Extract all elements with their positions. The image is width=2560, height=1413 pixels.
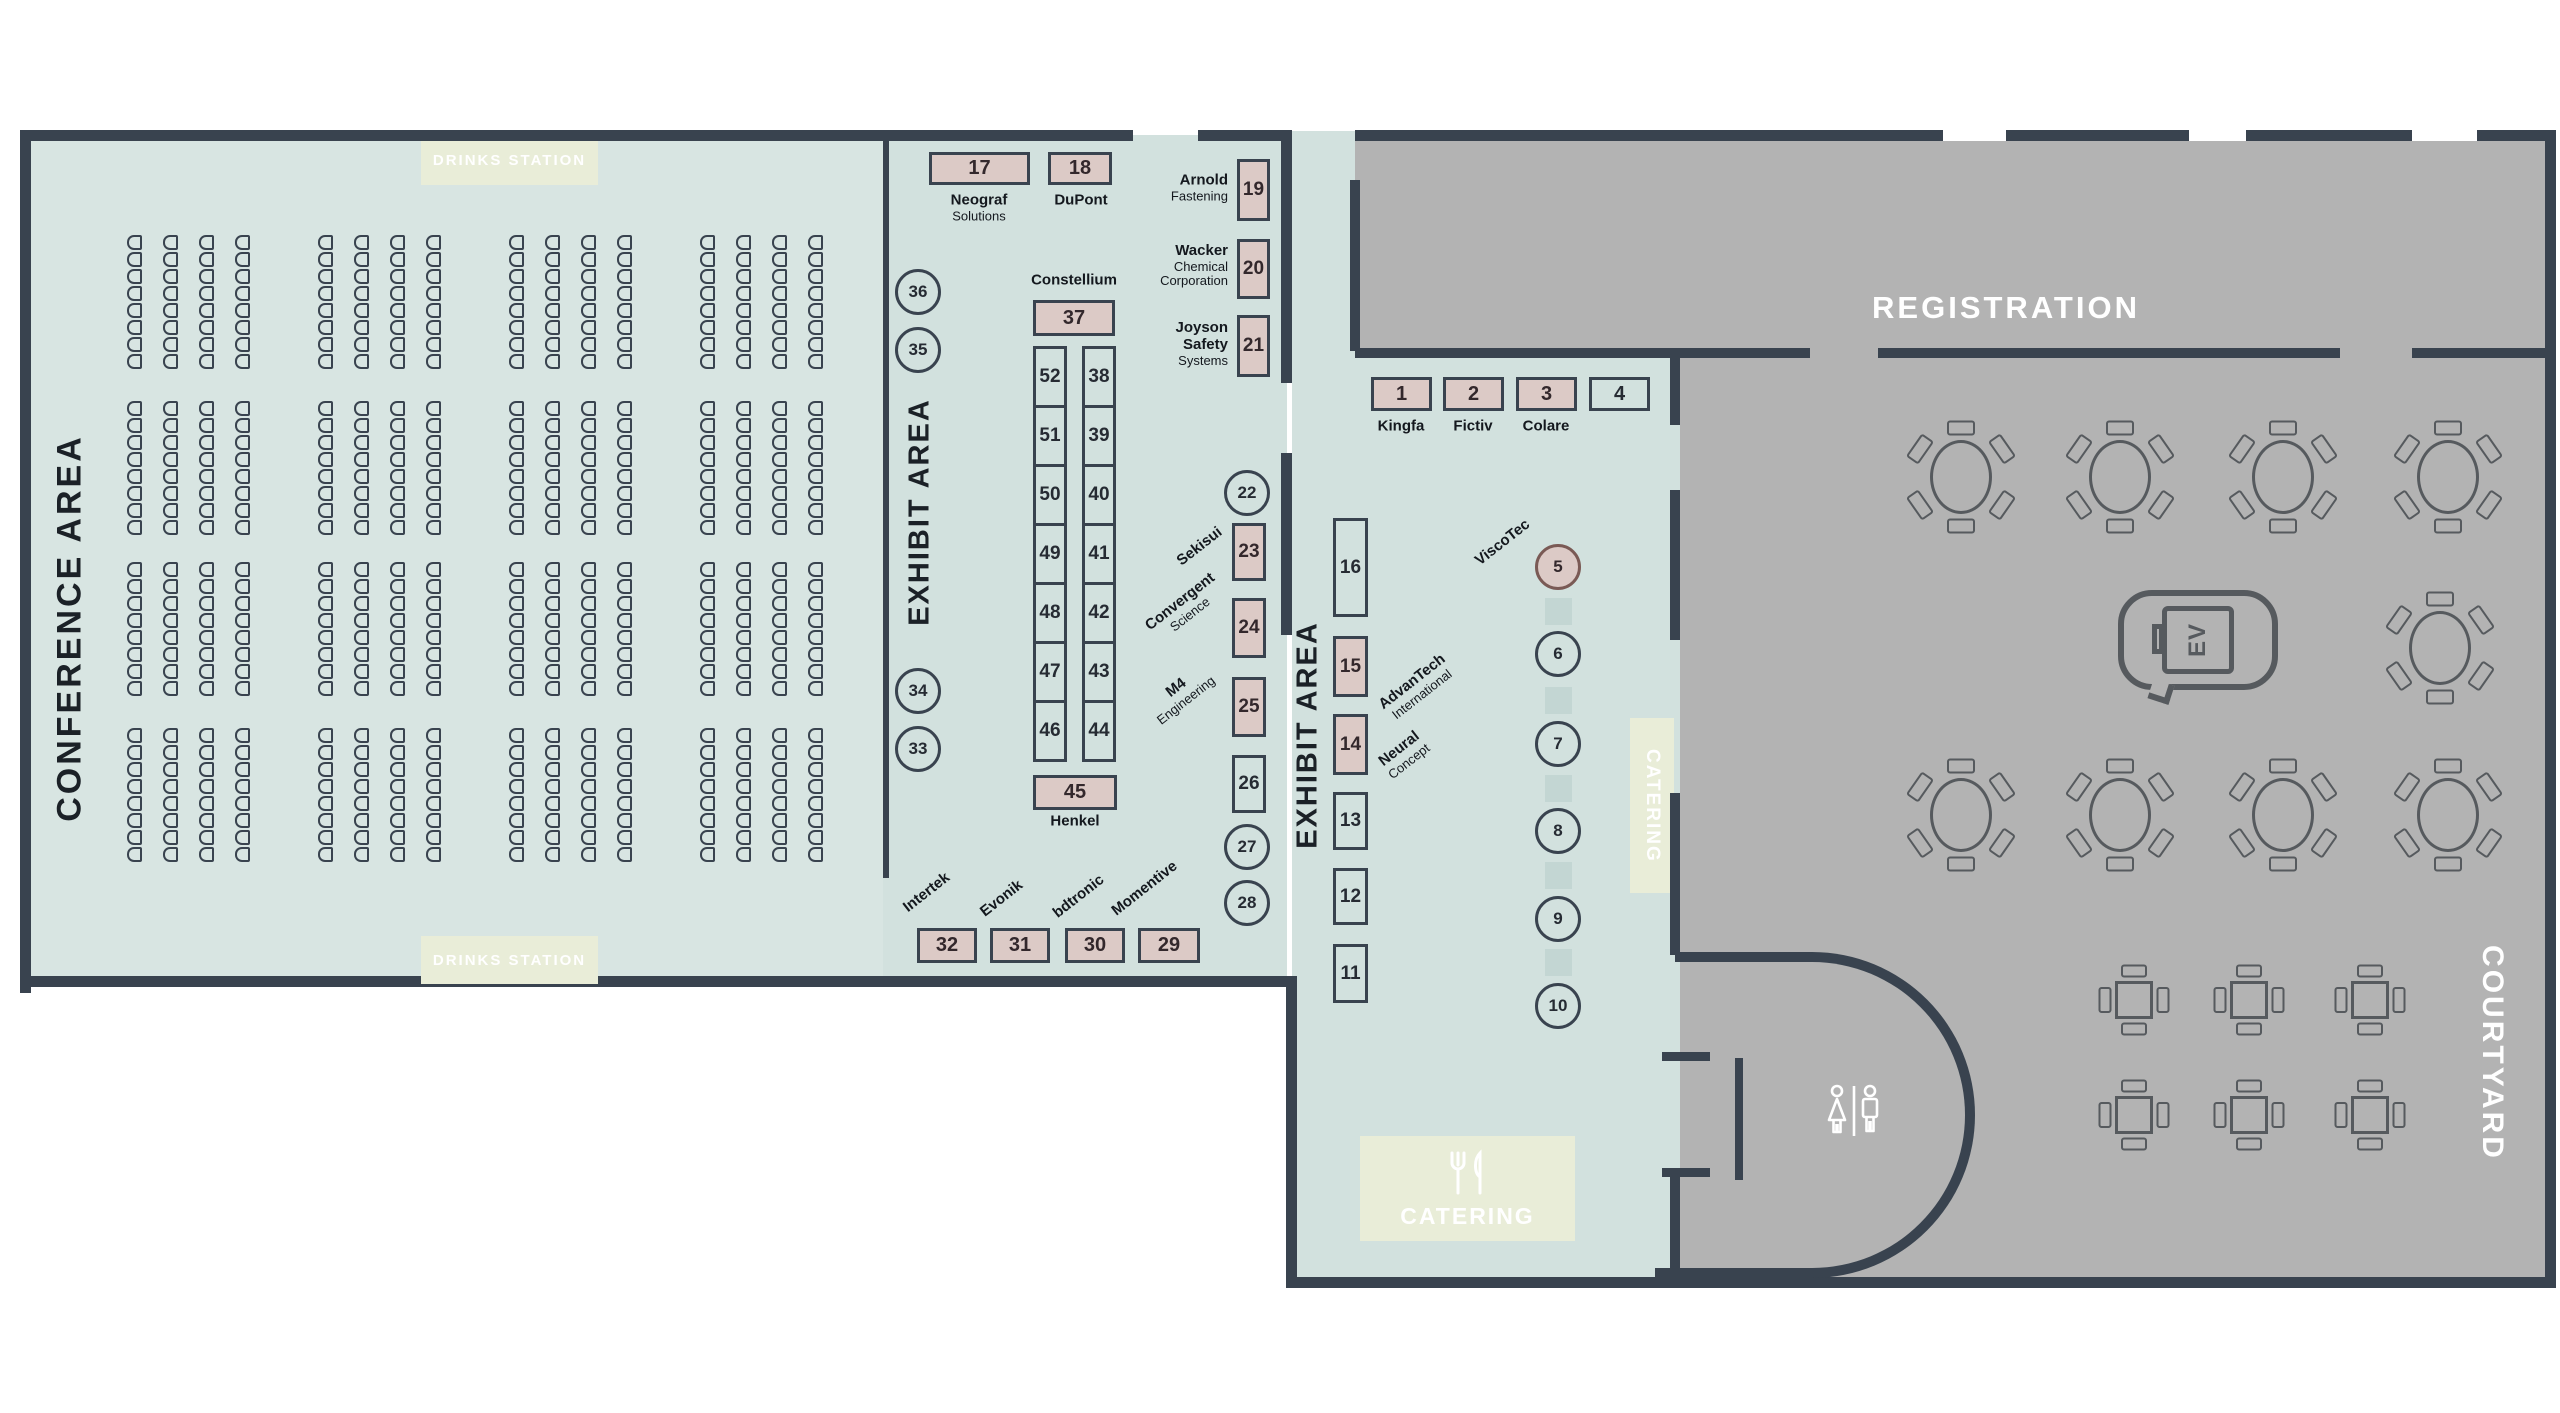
conference-chair: [581, 503, 596, 518]
booth-44[interactable]: 44: [1082, 700, 1116, 762]
wall: [1655, 1268, 1690, 1278]
conference-chair: [163, 613, 178, 628]
conference-chair: [700, 779, 715, 794]
conference-chair: [736, 613, 751, 628]
conference-chair: [235, 664, 250, 679]
conference-chair: [235, 813, 250, 828]
conference-chair: [199, 681, 214, 696]
conference-chair: [354, 728, 369, 743]
conference-chair: [235, 562, 250, 577]
conference-chair: [426, 847, 441, 862]
conference-chair: [545, 847, 560, 862]
conference-chair: [700, 664, 715, 679]
conference-chair: [426, 813, 441, 828]
conference-chair: [235, 435, 250, 450]
wall: [1670, 793, 1680, 955]
conference-chair: [199, 813, 214, 828]
conference-chair: [617, 418, 632, 433]
conference-chair: [545, 647, 560, 662]
conference-chair: [163, 269, 178, 284]
wall: [1878, 348, 2340, 358]
conference-chair: [509, 303, 524, 318]
wall: [1281, 453, 1292, 635]
conference-chair: [617, 320, 632, 335]
booth-23[interactable]: 23: [1232, 523, 1266, 581]
booth-4[interactable]: 4: [1589, 377, 1650, 411]
booth-34[interactable]: 34: [895, 668, 941, 714]
floor-conference-zone: [31, 141, 883, 982]
conference-chair: [736, 813, 751, 828]
conference-chair: [509, 647, 524, 662]
conference-chair: [736, 520, 751, 535]
conference-chair: [736, 401, 751, 416]
table-chair: [2121, 1080, 2147, 1093]
conference-chair: [736, 579, 751, 594]
conference-chair: [318, 435, 333, 450]
conference-chair: [581, 847, 596, 862]
booth-13[interactable]: 13: [1333, 792, 1368, 850]
conference-chair: [318, 252, 333, 267]
conference-chair: [163, 354, 178, 369]
conference-chair: [127, 354, 142, 369]
booth-48[interactable]: 48: [1033, 582, 1067, 644]
booth-24[interactable]: 24: [1232, 598, 1266, 658]
booth-14[interactable]: 14: [1333, 714, 1368, 775]
wall-conference-divider: [883, 141, 889, 878]
wall: [1355, 130, 1943, 141]
conference-chair: [509, 354, 524, 369]
conference-chair: [127, 847, 142, 862]
conference-chair: [736, 269, 751, 284]
conference-chair: [581, 813, 596, 828]
conference-chair: [354, 503, 369, 518]
table-chair: [2121, 965, 2147, 978]
round-table: [2409, 611, 2471, 685]
booth-35[interactable]: 35: [895, 327, 941, 373]
conference-chair: [736, 728, 751, 743]
conference-chair: [700, 303, 715, 318]
ev-battery-icon: EV: [2162, 606, 2234, 674]
conference-chair: [390, 337, 405, 352]
conference-chair: [235, 486, 250, 501]
conference-chair: [163, 596, 178, 611]
pillar: [1545, 598, 1572, 625]
booth-37[interactable]: 37: [1033, 300, 1115, 336]
conference-chair: [545, 779, 560, 794]
conference-chair: [390, 745, 405, 760]
conference-chair: [736, 596, 751, 611]
booth-41[interactable]: 41: [1082, 523, 1116, 585]
conference-chair: [390, 579, 405, 594]
table-chair: [2357, 965, 2383, 978]
booth-43[interactable]: 43: [1082, 641, 1116, 703]
conference-chair: [808, 401, 823, 416]
conference-chair: [545, 796, 560, 811]
conference-chair: [199, 779, 214, 794]
conference-chair: [545, 728, 560, 743]
conference-chair: [235, 401, 250, 416]
conference-chair: [127, 681, 142, 696]
conference-chair: [772, 762, 787, 777]
conference-chair: [318, 647, 333, 662]
conference-chair: [545, 486, 560, 501]
booth-7[interactable]: 7: [1535, 721, 1581, 767]
wall: [20, 130, 31, 993]
conference-chair: [772, 779, 787, 794]
conference-chair: [509, 745, 524, 760]
conference-chair: [426, 337, 441, 352]
table-chair: [2426, 592, 2454, 607]
conference-chair: [581, 762, 596, 777]
conference-chair: [426, 452, 441, 467]
booth-40[interactable]: 40: [1082, 464, 1116, 526]
booth-39[interactable]: 39: [1082, 405, 1116, 467]
conference-chair: [808, 520, 823, 535]
conference-chair: [617, 813, 632, 828]
conference-chair: [545, 579, 560, 594]
conference-chair: [127, 286, 142, 301]
table-chair: [1947, 421, 1975, 436]
conference-chair: [199, 286, 214, 301]
conference-chair: [235, 796, 250, 811]
booth-22[interactable]: 22: [1224, 470, 1270, 516]
booth-6[interactable]: 6: [1535, 631, 1581, 677]
conference-chair: [736, 664, 751, 679]
booth-3[interactable]: 3: [1516, 377, 1577, 411]
conference-chair: [199, 728, 214, 743]
conference-chair: [736, 503, 751, 518]
conference-chair: [772, 681, 787, 696]
round-table: [2252, 778, 2314, 852]
conference-chair: [426, 418, 441, 433]
conference-chair: [581, 664, 596, 679]
conference-chair: [700, 847, 715, 862]
conference-chair: [509, 728, 524, 743]
conference-chair: [772, 562, 787, 577]
table-chair: [2335, 987, 2348, 1013]
conference-chair: [354, 762, 369, 777]
booth-2[interactable]: 2: [1443, 377, 1504, 411]
wall: [2412, 348, 2556, 358]
conference-chair: [390, 562, 405, 577]
conference-chair: [163, 728, 178, 743]
conference-chair: [163, 435, 178, 450]
conference-chair: [509, 337, 524, 352]
conference-chair: [772, 252, 787, 267]
conference-chair: [354, 796, 369, 811]
booth-17[interactable]: 17: [929, 152, 1030, 185]
table-chair: [1947, 857, 1975, 872]
booth-50[interactable]: 50: [1033, 464, 1067, 526]
conference-chair: [617, 847, 632, 862]
conference-chair: [318, 664, 333, 679]
booth-25[interactable]: 25: [1232, 677, 1266, 737]
wall: [1286, 976, 1297, 1288]
conference-chair: [617, 579, 632, 594]
conference-chair: [808, 745, 823, 760]
conference-chair: [736, 354, 751, 369]
booth-47[interactable]: 47: [1033, 641, 1067, 703]
booth-16[interactable]: 16: [1333, 518, 1368, 617]
conference-chair: [545, 813, 560, 828]
conference-chair: [390, 779, 405, 794]
conference-chair: [509, 813, 524, 828]
conference-chair: [127, 579, 142, 594]
conference-chair: [235, 503, 250, 518]
conference-chair: [509, 401, 524, 416]
conference-chair: [581, 320, 596, 335]
conference-chair: [581, 435, 596, 450]
conference-chair: [700, 320, 715, 335]
booth-38[interactable]: 38: [1082, 346, 1116, 408]
conference-chair: [545, 503, 560, 518]
conference-chair: [617, 613, 632, 628]
conference-chair: [772, 354, 787, 369]
square-table: [2351, 981, 2389, 1019]
conference-chair: [736, 286, 751, 301]
conference-chair: [199, 337, 214, 352]
conference-chair: [318, 728, 333, 743]
conference-chair: [235, 337, 250, 352]
wall: [1281, 130, 1292, 383]
conference-chair: [617, 520, 632, 535]
round-table: [2089, 440, 2151, 514]
conference-chair: [127, 418, 142, 433]
booth-20[interactable]: 20: [1237, 239, 1270, 299]
booth-27[interactable]: 27: [1224, 824, 1270, 870]
table-chair: [2357, 1023, 2383, 1036]
conference-chair: [318, 469, 333, 484]
table-chair: [1947, 519, 1975, 534]
exhibitor-label-fictiv: Fictiv: [1453, 419, 1492, 436]
conference-chair: [390, 486, 405, 501]
conference-chair: [390, 596, 405, 611]
conference-chair: [318, 354, 333, 369]
conference-chair: [354, 745, 369, 760]
conference-chair: [736, 435, 751, 450]
booth-10[interactable]: 10: [1535, 983, 1581, 1029]
conference-chair: [545, 613, 560, 628]
conference-chair: [700, 647, 715, 662]
wall: [1198, 130, 1292, 141]
conference-chair: [163, 235, 178, 250]
conference-chair: [736, 745, 751, 760]
booth-29[interactable]: 29: [1138, 928, 1200, 963]
conference-chair: [736, 469, 751, 484]
conference-chair: [772, 401, 787, 416]
pillar: [1545, 775, 1572, 802]
conference-chair: [509, 779, 524, 794]
conference-chair: [390, 235, 405, 250]
booth-31[interactable]: 31: [990, 928, 1050, 963]
conference-chair: [581, 630, 596, 645]
conference-chair: [617, 647, 632, 662]
conference-chair: [318, 320, 333, 335]
booth-46[interactable]: 46: [1033, 700, 1067, 762]
exhibitor-label-kingfa: Kingfa: [1378, 419, 1425, 436]
conference-chair: [127, 303, 142, 318]
conference-chair: [426, 779, 441, 794]
conference-chair: [426, 235, 441, 250]
conference-chair: [390, 503, 405, 518]
conference-chair: [318, 779, 333, 794]
conference-chair: [390, 796, 405, 811]
conference-chair: [426, 579, 441, 594]
conference-chair: [318, 303, 333, 318]
conference-chair: [700, 745, 715, 760]
conference-chair: [772, 337, 787, 352]
booth-45[interactable]: 45: [1033, 775, 1117, 810]
conference-chair: [808, 579, 823, 594]
wall: [1286, 1277, 2556, 1288]
booth-28[interactable]: 28: [1224, 880, 1270, 926]
conference-chair: [808, 613, 823, 628]
conference-chair: [581, 401, 596, 416]
conference-chair: [199, 252, 214, 267]
wall: [1662, 1168, 1710, 1177]
conference-chair: [199, 503, 214, 518]
conference-chair: [772, 320, 787, 335]
exhibitor-label-line: DuPont: [1054, 193, 1107, 210]
conference-chair: [545, 630, 560, 645]
drinks-station-bottom-label: DRINKS STATION: [433, 952, 586, 969]
exhibitor-label-dupont: DuPont: [1054, 193, 1107, 210]
pillar: [1545, 862, 1572, 889]
conference-chair: [127, 647, 142, 662]
conference-chair: [426, 354, 441, 369]
conference-chair: [808, 286, 823, 301]
conference-chair: [318, 286, 333, 301]
exhibitor-label-wacker-chemical: WackerChemicalCorporation: [1160, 243, 1228, 289]
conference-chair: [808, 320, 823, 335]
conference-chair: [808, 252, 823, 267]
booth-52[interactable]: 52: [1033, 346, 1067, 408]
booth-1[interactable]: 1: [1371, 377, 1432, 411]
conference-chair: [509, 469, 524, 484]
conference-chair: [390, 452, 405, 467]
drinks-station-top-label: DRINKS STATION: [433, 152, 586, 169]
booth-8[interactable]: 8: [1535, 808, 1581, 854]
conference-chair: [235, 681, 250, 696]
conference-chair: [545, 401, 560, 416]
conference-chair: [581, 337, 596, 352]
conference-chair: [127, 728, 142, 743]
conference-chair: [199, 435, 214, 450]
booth-21[interactable]: 21: [1237, 315, 1270, 377]
conference-chair: [127, 469, 142, 484]
conference-chair: [163, 796, 178, 811]
conference-chair: [808, 452, 823, 467]
booth-42[interactable]: 42: [1082, 582, 1116, 644]
conference-chair: [127, 830, 142, 845]
conference-chair: [163, 813, 178, 828]
booth-33[interactable]: 33: [895, 726, 941, 772]
booth-19[interactable]: 19: [1237, 159, 1270, 221]
conference-chair: [808, 486, 823, 501]
conference-chair: [318, 630, 333, 645]
booth-5[interactable]: 5: [1535, 544, 1581, 590]
round-table: [2417, 440, 2479, 514]
conference-chair: [736, 252, 751, 267]
conference-chair: [163, 320, 178, 335]
conference-chair: [808, 847, 823, 862]
conference-chair: [617, 779, 632, 794]
booth-26[interactable]: 26: [1232, 755, 1266, 813]
conference-chair: [700, 728, 715, 743]
exhibit-area-1-label: EXHIBIT AREA: [904, 398, 937, 626]
conference-chair: [617, 762, 632, 777]
booth-51[interactable]: 51: [1033, 405, 1067, 467]
square-table: [2115, 981, 2153, 1019]
booth-12[interactable]: 12: [1333, 868, 1368, 925]
conference-chair: [426, 269, 441, 284]
conference-chair: [127, 337, 142, 352]
booth-9[interactable]: 9: [1535, 896, 1581, 942]
booth-32[interactable]: 32: [917, 928, 977, 963]
conference-chair: [163, 830, 178, 845]
conference-chair: [617, 728, 632, 743]
conference-chair: [390, 681, 405, 696]
conference-chair: [390, 469, 405, 484]
conference-chair: [808, 354, 823, 369]
conference-chair: [318, 579, 333, 594]
booth-36[interactable]: 36: [895, 269, 941, 315]
table-chair: [2434, 759, 2462, 774]
conference-chair: [808, 796, 823, 811]
booth-30[interactable]: 30: [1065, 928, 1125, 963]
conference-chair: [545, 469, 560, 484]
table-chair: [1947, 759, 1975, 774]
conference-chair: [509, 830, 524, 845]
conference-chair: [617, 303, 632, 318]
conference-chair: [700, 520, 715, 535]
booth-49[interactable]: 49: [1033, 523, 1067, 585]
conference-chair: [700, 562, 715, 577]
conference-chair: [581, 252, 596, 267]
exhibitor-label-line: Corporation: [1160, 274, 1228, 289]
conference-chair: [545, 596, 560, 611]
conference-chair: [426, 435, 441, 450]
booth-11[interactable]: 11: [1333, 944, 1368, 1003]
conference-chair: [426, 728, 441, 743]
conference-chair: [581, 596, 596, 611]
conference-chair: [509, 847, 524, 862]
conference-chair: [772, 452, 787, 467]
conference-chair: [426, 401, 441, 416]
conference-chair: [509, 435, 524, 450]
booth-15[interactable]: 15: [1333, 636, 1368, 697]
conference-chair: [318, 269, 333, 284]
conference-chair: [127, 520, 142, 535]
table-chair: [2269, 421, 2297, 436]
conference-chair: [127, 269, 142, 284]
conference-chair: [354, 579, 369, 594]
conference-chair: [127, 596, 142, 611]
table-chair: [2106, 759, 2134, 774]
conference-chair: [127, 503, 142, 518]
conference-chair: [354, 235, 369, 250]
conference-chair: [700, 469, 715, 484]
conference-chair: [235, 745, 250, 760]
conference-chair: [509, 252, 524, 267]
conference-chair: [163, 469, 178, 484]
conference-chair: [199, 452, 214, 467]
pillar: [1545, 687, 1572, 714]
conference-chair: [509, 762, 524, 777]
booth-18[interactable]: 18: [1048, 152, 1112, 185]
conference-chair: [509, 596, 524, 611]
exhibitor-label-line: Arnold: [1171, 172, 1228, 189]
